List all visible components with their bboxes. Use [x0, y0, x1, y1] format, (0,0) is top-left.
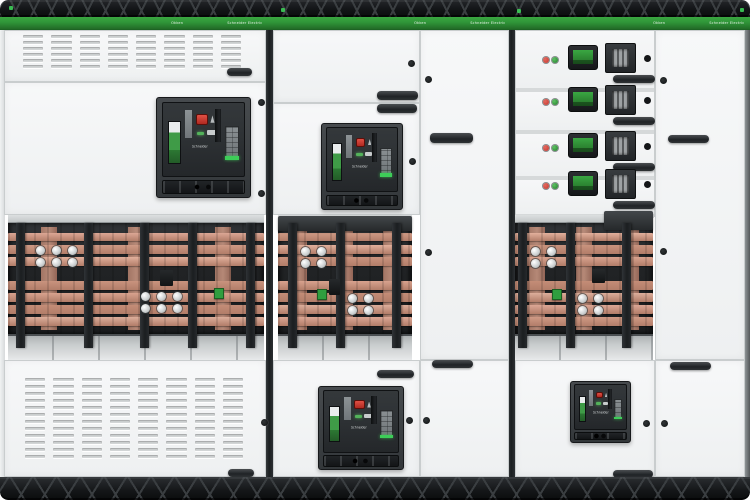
vent-louver-slot: [195, 420, 215, 423]
busbar-bolt: [36, 258, 45, 267]
busbar-bottom-tray: [515, 334, 653, 360]
vent-louver-slot: [82, 455, 102, 458]
left-column-vent-panel-bottom: [4, 360, 266, 477]
breaker-gray-bar: [346, 135, 352, 159]
vent-louver-slot: [195, 448, 215, 451]
vent-louver-slot: [166, 448, 186, 451]
frame-corner-marker: [740, 8, 744, 12]
red-indicator-light: [543, 99, 549, 105]
busbar-bolt: [594, 294, 603, 303]
green-indicator-light: [552, 183, 558, 189]
product-name-label: Okken: [172, 21, 184, 25]
vent-louver-slot: [193, 41, 213, 44]
green-indicator-light: [552, 99, 558, 105]
vent-louver-slot: [25, 413, 45, 416]
vent-louver-slot: [110, 448, 130, 451]
red-indicator-light: [543, 57, 549, 63]
vent-louver-slot: [195, 399, 215, 402]
breaker-keypad-green-bar: [380, 435, 393, 439]
middle-column-right-door-upper: [420, 30, 509, 360]
busbar-bolt: [52, 258, 61, 267]
busbar-bolt: [364, 294, 373, 303]
drawer-handle: [613, 75, 655, 83]
door-screw-dot: [258, 190, 265, 197]
breaker-control-unit-green: [579, 396, 587, 422]
rotary-switch: [568, 171, 598, 196]
vent-louver-slot: [193, 47, 213, 50]
vent-louver-slot: [138, 420, 158, 423]
green-phase-tag: [214, 288, 224, 299]
breaker-open-button: [196, 114, 207, 125]
busbar-bolt: [301, 247, 310, 256]
vent-louver-slot: [82, 378, 102, 381]
busbar-bolt: [531, 247, 540, 256]
brand-band: Okken Schneider Electric Okken Schneider…: [0, 17, 750, 30]
vent-louver-slot: [108, 59, 128, 62]
door-screw-dot: [408, 60, 415, 67]
door-screw-dot: [261, 419, 268, 426]
vent-louver-slot: [25, 385, 45, 388]
door-handle: [432, 360, 473, 368]
busbar-support-post: [16, 223, 25, 348]
busbar-bolt: [578, 294, 587, 303]
vent-louver-slot: [80, 53, 100, 56]
vent-louver-slot: [193, 35, 213, 38]
busbar-support-post: [518, 223, 527, 348]
busbar-bolt: [348, 294, 357, 303]
vent-louver-slot: [25, 441, 45, 444]
warning-triangle-icon: [210, 115, 214, 122]
busbar-support-post: [622, 223, 631, 348]
brand-logo: Schneider Electric: [470, 21, 505, 25]
vent-louver-slot: [53, 420, 73, 423]
busbar-bolt: [173, 304, 182, 313]
vent-louver-slot: [53, 427, 73, 430]
vent-louver-slot: [223, 406, 243, 409]
breaker-open-button: [356, 138, 366, 147]
vent-louver-slot: [138, 392, 158, 395]
vent-louver-slot: [223, 434, 243, 437]
top-frame-truss: [0, 0, 750, 17]
air-circuit-breaker: Schneider: [321, 123, 403, 210]
right-column-drawer-stack: [515, 30, 655, 217]
vent-louver-slot: [82, 406, 102, 409]
meter-display: [605, 131, 636, 161]
busbar-bolt: [68, 258, 77, 267]
vent-louver-slot: [108, 41, 128, 44]
vent-louver-slot: [195, 441, 215, 444]
green-phase-tag: [552, 289, 562, 300]
busbar-bolt: [531, 259, 540, 268]
vent-louver-slot: [223, 448, 243, 451]
door-handle: [377, 370, 414, 378]
vent-louver-slot: [110, 378, 130, 381]
vent-louver-slot: [53, 455, 73, 458]
vent-louver-slot: [110, 392, 130, 395]
breaker-keypad-green-bar: [380, 173, 392, 177]
vent-louver-slot: [110, 413, 130, 416]
vent-louver-slot: [166, 378, 186, 381]
vent-louver-slot: [136, 47, 156, 50]
busbar-bolt: [317, 247, 326, 256]
vent-louver-slot: [82, 420, 102, 423]
door-screw-dot: [661, 420, 668, 427]
vent-louver-slot: [80, 41, 100, 44]
vent-louver-slot: [138, 448, 158, 451]
breaker-charging-slot: [371, 396, 377, 424]
vent-louver-slot: [110, 399, 130, 402]
busbar-bay-cavity: [515, 223, 653, 334]
busbar-connector-block: [592, 269, 605, 283]
air-circuit-breaker: Schneider: [570, 381, 631, 443]
breaker-charging-slot: [215, 109, 222, 143]
right-column-right-door-lower: [655, 360, 745, 477]
vent-louver-slot: [110, 385, 130, 388]
vent-louver-slot: [82, 399, 102, 402]
busbar-bottom-tray: [8, 334, 264, 360]
vent-louver-slot: [23, 59, 43, 62]
vent-louver-slot: [80, 47, 100, 50]
brand-logo: Schneider Electric: [227, 21, 262, 25]
vent-louver-slot: [51, 53, 71, 56]
breaker-keypad-green-bar: [225, 156, 239, 160]
vent-louver-slot: [138, 413, 158, 416]
vent-louver-slot: [53, 448, 73, 451]
vent-louver-slot: [193, 59, 213, 62]
brand-group-right-column: Okken Schneider Electric: [652, 17, 744, 29]
breaker-brand-label: Schneider: [593, 411, 609, 415]
vent-louver-slot: [166, 385, 186, 388]
busbar-bolt: [157, 292, 166, 301]
vent-louver-slot: [25, 406, 45, 409]
breaker-gray-bar: [589, 390, 594, 407]
vent-louver-slot: [138, 427, 158, 430]
drawer-lock-knob: [644, 55, 651, 62]
green-indicator-light: [552, 145, 558, 151]
vent-louver-slot: [53, 392, 73, 395]
middle-column-right-door-lower: [420, 360, 509, 477]
rotary-switch-green-face: [573, 176, 593, 190]
busbar-connector-block: [160, 270, 173, 286]
green-indicator-light: [552, 57, 558, 63]
vent-louver-slot: [25, 427, 45, 430]
vent-louver-slot: [23, 35, 43, 38]
door-screw-dot: [409, 158, 416, 165]
frame-corner-marker: [9, 6, 13, 10]
vent-louver-slot: [136, 41, 156, 44]
vent-louver-slot: [223, 392, 243, 395]
vent-louver-slot: [110, 434, 130, 437]
vent-louver-slot: [223, 399, 243, 402]
product-name-label: Okken: [654, 21, 666, 25]
vent-louver-slot: [23, 47, 43, 50]
vent-louver-slot: [193, 65, 213, 68]
vent-louver-slot: [138, 378, 158, 381]
vent-louver-slot: [223, 441, 243, 444]
busbar-support-post: [140, 223, 149, 348]
rotary-switch-green-face: [573, 138, 593, 152]
vent-louver-slot: [82, 385, 102, 388]
door-screw-dot: [425, 76, 432, 83]
vent-louver-slot: [138, 441, 158, 444]
rotary-switch-green-face: [573, 92, 593, 106]
vent-louver-slot: [223, 413, 243, 416]
vent-louver-slot: [195, 385, 215, 388]
breaker-keypad: [380, 410, 393, 438]
vent-louver-slot: [51, 47, 71, 50]
vent-louver-slot: [51, 59, 71, 62]
breaker-faceplate: Schneider: [323, 390, 399, 452]
vent-louver-slot: [80, 59, 100, 62]
red-indicator-light: [543, 183, 549, 189]
vent-louver-slot: [193, 53, 213, 56]
busbar-bolt: [547, 259, 556, 268]
vent-louver-slot: [82, 434, 102, 437]
vent-louver-slot: [108, 65, 128, 68]
drawer-unit-1: [516, 31, 654, 92]
vent-louver-slot: [221, 41, 241, 44]
vent-louver-slot: [51, 65, 71, 68]
busbar-segment-shadows: [515, 223, 653, 334]
rotary-switch: [568, 45, 598, 70]
door-handle: [430, 133, 473, 143]
vent-louver-slot: [82, 413, 102, 416]
busbar-bolt: [157, 304, 166, 313]
vent-louver-slot: [110, 441, 130, 444]
door-handle: [377, 91, 418, 100]
meter-display-screen: [612, 175, 629, 193]
drawer-controls: [516, 168, 654, 210]
vent-louver-slot: [25, 399, 45, 402]
vent-louver-slot: [53, 385, 73, 388]
breaker-racking-strip: [574, 432, 627, 440]
meter-display: [605, 43, 636, 73]
right-column-right-door-upper: [655, 30, 745, 360]
vent-louver-slot: [195, 392, 215, 395]
column-separator-1: [266, 30, 273, 477]
breaker-gray-bar: [185, 110, 192, 138]
vent-louver-slot: [166, 399, 186, 402]
vent-louver-slot: [136, 53, 156, 56]
vent-louver-slot: [166, 434, 186, 437]
vent-louver-slot: [164, 65, 184, 68]
vent-louver-slot: [223, 427, 243, 430]
vent-louver-slot: [108, 47, 128, 50]
breaker-racking-strip: [326, 195, 398, 207]
vent-louver-slot: [23, 65, 43, 68]
door-screw-dot: [258, 99, 265, 106]
vent-louver-slot: [108, 53, 128, 56]
vent-louver-slot: [51, 35, 71, 38]
busbar-connector-block: [329, 279, 340, 295]
base-frame-truss: [0, 477, 750, 500]
breaker-racking-strip: [323, 455, 399, 466]
vent-louver-slot: [138, 455, 158, 458]
door-screw-dot: [660, 248, 667, 255]
breaker-faceplate: Schneider: [162, 102, 246, 177]
vent-louver-slot: [82, 448, 102, 451]
door-handle: [227, 68, 252, 76]
frame-corner-marker: [281, 8, 285, 12]
breaker-brand-label: Schneider: [351, 426, 367, 430]
vent-louver-slot: [166, 406, 186, 409]
vent-louver-slot: [82, 392, 102, 395]
vent-louver-slot: [164, 47, 184, 50]
door-screw-dot: [425, 249, 432, 256]
vent-louver-slot: [53, 413, 73, 416]
vent-louver-slot: [51, 41, 71, 44]
busbar-support-post: [288, 223, 297, 348]
vent-louver-slot: [25, 455, 45, 458]
busbar-bolt: [301, 259, 310, 268]
breaker-charging-slot: [608, 389, 612, 409]
rotary-switch: [568, 133, 598, 158]
door-screw-dot: [423, 417, 430, 424]
green-phase-tag: [317, 289, 327, 300]
drawer-lock-knob: [644, 143, 651, 150]
vent-louver-slot: [166, 427, 186, 430]
busbar-support-post: [188, 223, 197, 348]
vent-louver-slot: [80, 35, 100, 38]
breaker-control-unit-green: [329, 406, 340, 442]
vent-louver-slot: [136, 65, 156, 68]
vent-louver-slot: [136, 35, 156, 38]
vent-louver-slot: [221, 53, 241, 56]
rotary-switch-green-face: [573, 50, 593, 64]
busbar-support-post: [246, 223, 255, 348]
vent-louver-slot: [138, 399, 158, 402]
vent-louver-slot: [223, 378, 243, 381]
busbar-bolt: [348, 306, 357, 315]
vent-louver-slot: [166, 392, 186, 395]
vent-louver-slot: [195, 406, 215, 409]
busbar-support-post: [84, 223, 93, 348]
breaker-brand-label: Schneider: [352, 165, 368, 169]
brand-logo: Schneider Electric: [709, 21, 744, 25]
busbar-bolt: [36, 246, 45, 255]
air-circuit-breaker: Schneider: [318, 386, 404, 470]
busbar-bolt: [547, 247, 556, 256]
vent-louver-slot: [53, 399, 73, 402]
vent-louver-slot: [23, 53, 43, 56]
vent-louver-slot: [166, 420, 186, 423]
door-handle: [668, 135, 709, 143]
breaker-keypad: [225, 126, 239, 160]
vent-louver-slot: [53, 378, 73, 381]
breaker-ready-led: [596, 402, 601, 404]
vent-louver-slot: [138, 434, 158, 437]
breaker-control-unit-green: [332, 143, 343, 181]
meter-display: [605, 169, 636, 199]
product-name-label: Okken: [415, 21, 427, 25]
vent-louver-slot: [221, 47, 241, 50]
door-handle: [377, 104, 417, 113]
vent-louver-slot: [195, 413, 215, 416]
breaker-ready-led: [356, 153, 362, 156]
door-handle: [670, 362, 711, 370]
busbar-bolt: [141, 304, 150, 313]
vent-louver-slot: [110, 420, 130, 423]
vent-louver-slot: [164, 59, 184, 62]
vent-louver-slot: [53, 441, 73, 444]
vent-louver-slot: [166, 441, 186, 444]
frame-corner-marker: [517, 9, 521, 13]
breaker-ready-led: [197, 132, 204, 136]
vent-louver-slot: [23, 41, 43, 44]
vent-louver-slot: [108, 35, 128, 38]
meter-display-screen: [612, 137, 629, 155]
breaker-open-button: [354, 400, 364, 409]
vent-louver-slot: [82, 441, 102, 444]
vent-louver-slot: [53, 406, 73, 409]
door-handle: [228, 469, 254, 477]
red-indicator-light: [543, 145, 549, 151]
breaker-keypad-green-bar: [614, 417, 623, 420]
busbar-bolt: [173, 292, 182, 301]
busbar-segment-shadows: [8, 223, 264, 334]
meter-display-screen: [612, 91, 629, 109]
busbar-bolt: [52, 246, 61, 255]
vent-louver-slot: [25, 420, 45, 423]
breaker-open-button: [596, 392, 603, 399]
vent-louver-slot: [221, 35, 241, 38]
door-screw-dot: [643, 420, 650, 427]
vent-louver-slot: [195, 434, 215, 437]
breaker-faceplate: Schneider: [326, 127, 398, 192]
drawer-controls: [516, 42, 654, 84]
vent-louver-slot: [25, 448, 45, 451]
busbar-bolt: [141, 292, 150, 301]
breaker-racking-strip: [162, 180, 246, 194]
vent-louver-slot: [164, 35, 184, 38]
drawer-handle: [613, 117, 655, 125]
busbar-support-post: [392, 223, 401, 348]
column-separator-2: [508, 30, 515, 477]
drawer-lock-knob: [644, 97, 651, 104]
breaker-brand-label: Schneider: [192, 145, 208, 149]
door-screw-dot: [406, 417, 413, 424]
vent-louver-slot: [195, 378, 215, 381]
vent-louver-slot: [195, 455, 215, 458]
vent-louver-slot: [166, 455, 186, 458]
air-circuit-breaker: Schneider: [156, 97, 251, 198]
brand-group-middle-column: Okken Schneider Electric: [413, 17, 505, 29]
drawer-lock-knob: [644, 181, 651, 188]
switchboard-photo: Okken Schneider Electric Okken Schneider…: [0, 0, 750, 500]
busbar-bolt: [317, 259, 326, 268]
vent-louver-slot: [53, 434, 73, 437]
vent-louver-slot: [221, 59, 241, 62]
breaker-gray-bar: [344, 397, 351, 420]
drawer-controls: [516, 130, 654, 172]
rotary-switch: [568, 87, 598, 112]
drawer-handle: [613, 201, 655, 209]
breaker-control-unit-green: [168, 121, 180, 165]
busbar-support-post: [566, 223, 575, 348]
door-screw-dot: [660, 77, 667, 84]
vent-louver-slot: [110, 455, 130, 458]
breaker-ready-led: [355, 415, 362, 418]
vent-louver-slot: [164, 41, 184, 44]
vent-louver-slot: [138, 406, 158, 409]
vent-louver-slot: [166, 413, 186, 416]
busbar-bolt: [578, 306, 587, 315]
meter-display-screen: [612, 49, 629, 67]
vent-louver-slot: [138, 385, 158, 388]
vent-louver-slot: [25, 434, 45, 437]
vent-louver-slot: [25, 392, 45, 395]
breaker-keypad: [380, 148, 392, 177]
